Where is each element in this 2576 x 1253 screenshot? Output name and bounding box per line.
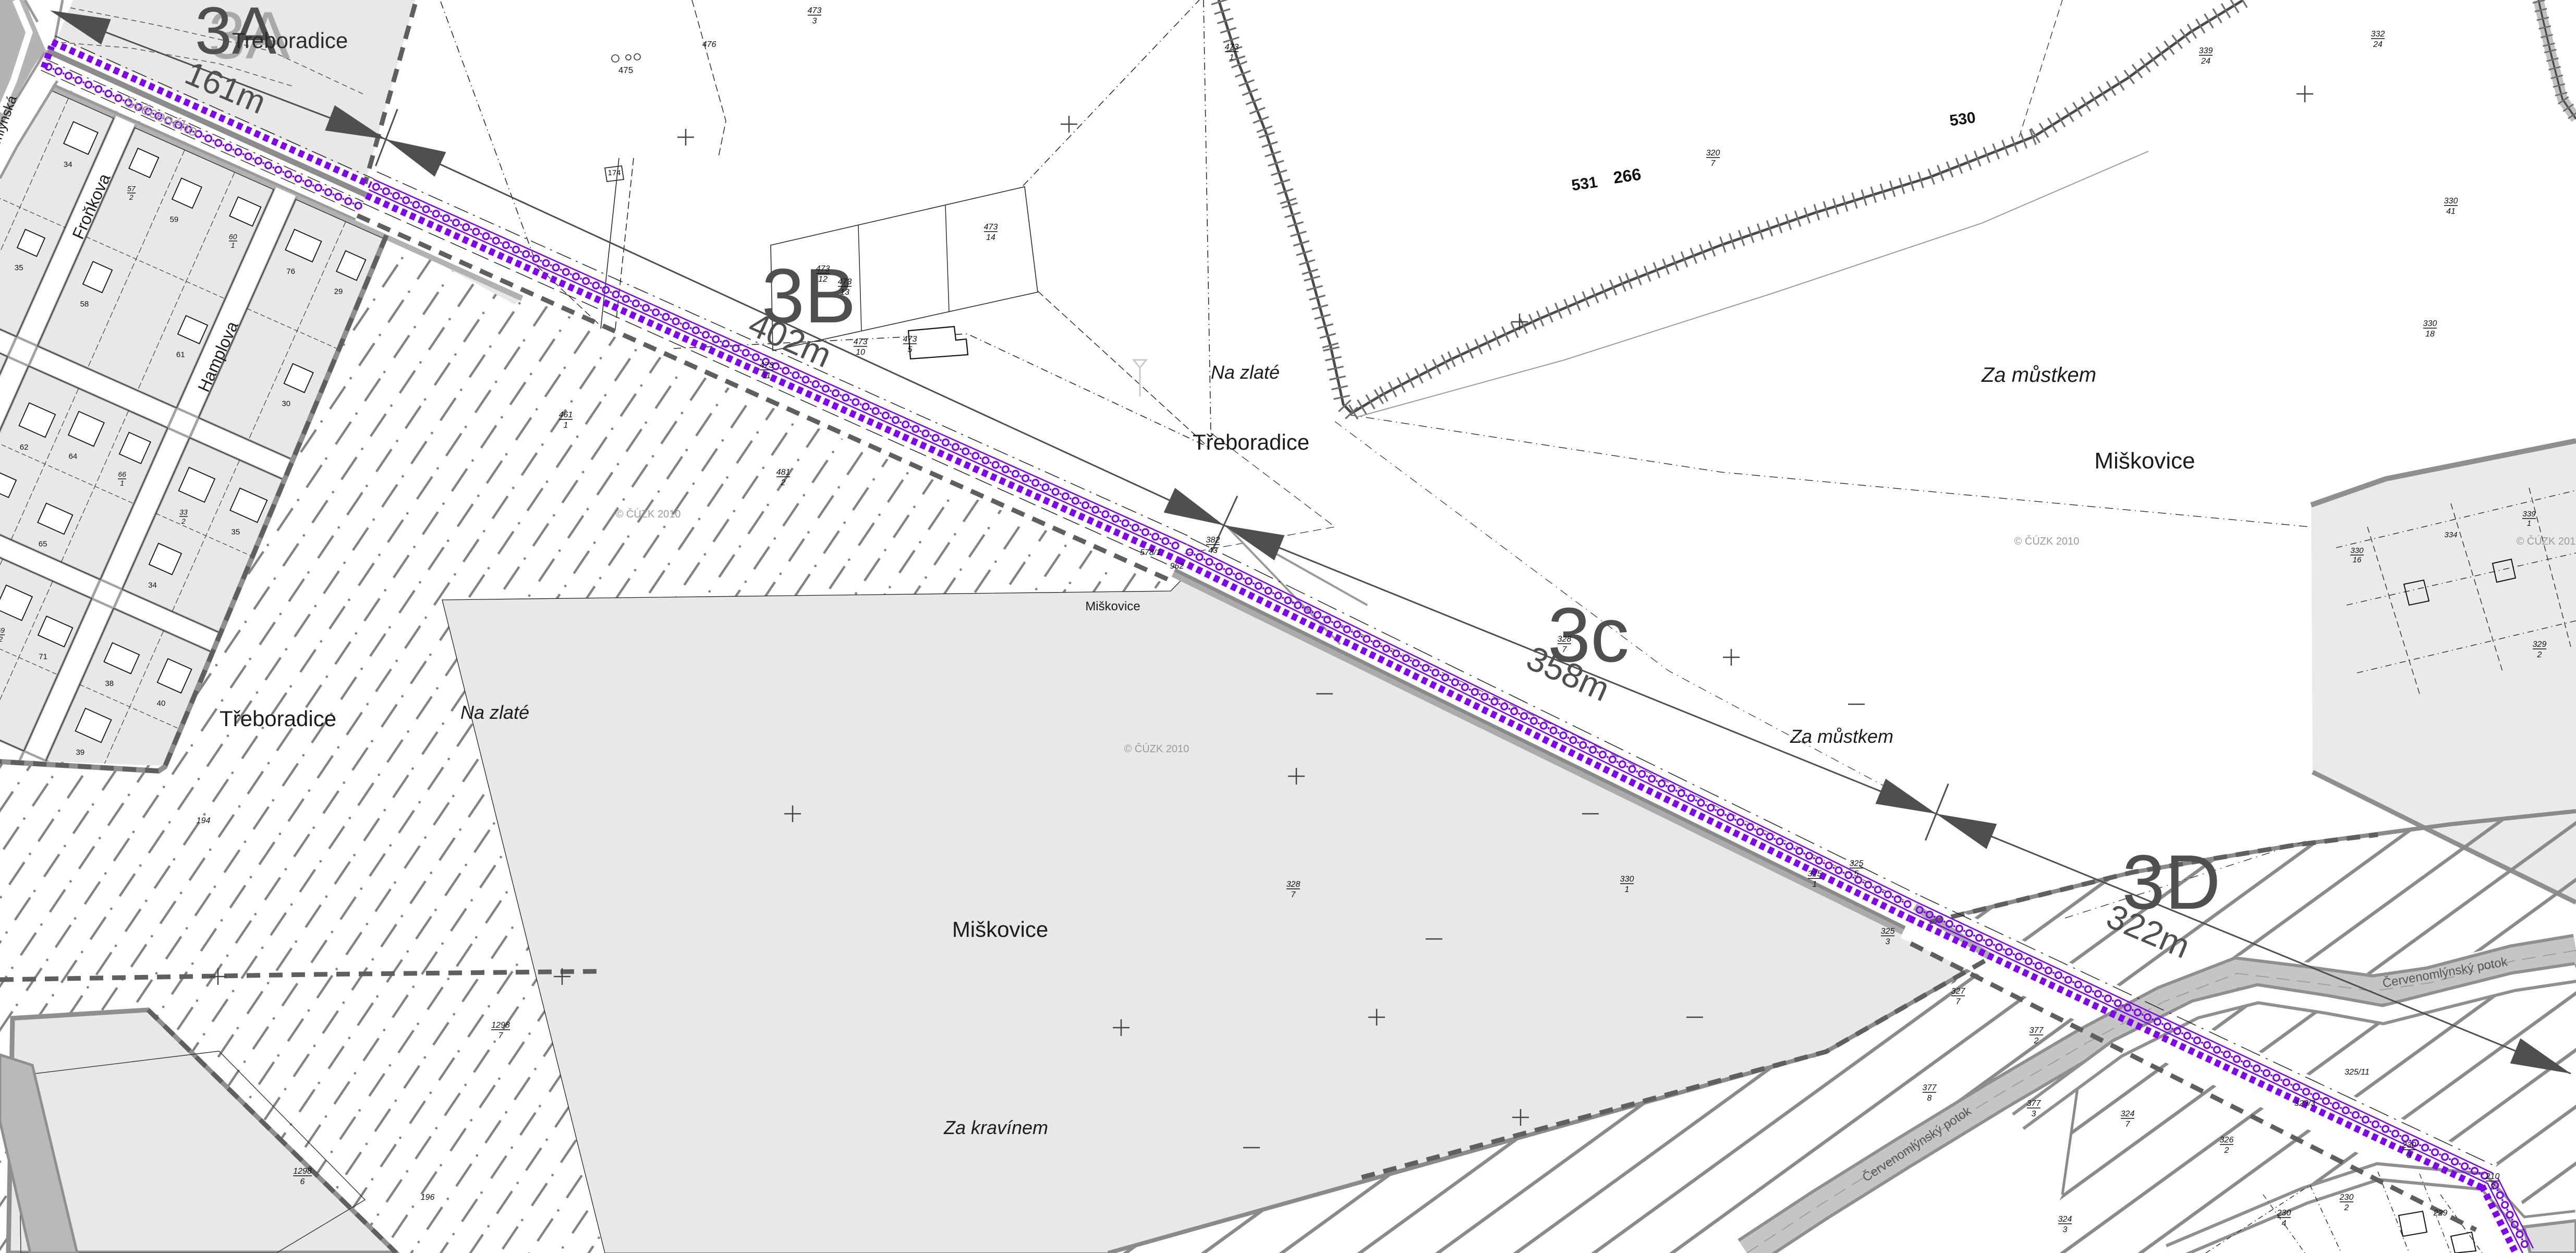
svg-text:330: 330 <box>1620 875 1634 884</box>
svg-text:481: 481 <box>776 468 791 477</box>
svg-text:66: 66 <box>118 470 126 478</box>
svg-text:473: 473 <box>984 223 998 232</box>
svg-text:1: 1 <box>1625 885 1630 894</box>
svg-text:473: 473 <box>854 338 868 346</box>
svg-text:2: 2 <box>781 478 786 487</box>
svg-text:29: 29 <box>334 287 343 296</box>
svg-text:229: 229 <box>2433 1209 2448 1218</box>
svg-text:2: 2 <box>2344 1203 2349 1212</box>
svg-text:473: 473 <box>903 335 917 344</box>
svg-text:2: 2 <box>2224 1146 2229 1155</box>
svg-text:330: 330 <box>2350 546 2364 555</box>
svg-text:© ČÚZK 2010: © ČÚZK 2010 <box>616 508 681 520</box>
svg-text:5: 5 <box>908 345 913 354</box>
svg-text:Za můstkem: Za můstkem <box>1790 726 1893 747</box>
svg-text:330: 330 <box>2423 319 2437 328</box>
svg-text:320: 320 <box>1706 149 1720 158</box>
svg-text:30: 30 <box>282 400 290 408</box>
svg-text:325: 325 <box>1808 870 1822 878</box>
svg-text:2: 2 <box>2537 650 2542 659</box>
svg-text:476: 476 <box>702 40 716 49</box>
svg-text:3: 3 <box>2063 1225 2068 1234</box>
svg-text:1298: 1298 <box>491 1021 510 1030</box>
svg-text:38: 38 <box>105 679 114 688</box>
svg-text:3: 3 <box>2032 1110 2036 1118</box>
svg-text:16: 16 <box>2353 556 2362 564</box>
svg-text:60: 60 <box>229 232 237 240</box>
svg-text:58: 58 <box>80 300 89 309</box>
svg-text:34: 34 <box>64 160 72 169</box>
svg-text:59: 59 <box>170 215 179 224</box>
svg-text:11: 11 <box>762 371 771 380</box>
svg-text:324: 324 <box>2121 1110 2135 1118</box>
svg-text:12: 12 <box>818 275 828 284</box>
svg-text:Miškovice: Miškovice <box>1085 599 1140 613</box>
svg-text:© ČÚZK 2010: © ČÚZK 2010 <box>2517 535 2576 547</box>
svg-text:3: 3 <box>1886 937 1890 946</box>
svg-text:57: 57 <box>127 184 136 192</box>
svg-text:7: 7 <box>1711 159 1716 168</box>
svg-text:6: 6 <box>300 1177 305 1186</box>
svg-text:35: 35 <box>15 263 23 272</box>
svg-text:34: 34 <box>148 581 157 589</box>
svg-text:328: 328 <box>1286 880 1301 889</box>
svg-text:33: 33 <box>179 508 188 516</box>
svg-text:Třeboradice: Třeboradice <box>1193 430 1309 454</box>
svg-text:41: 41 <box>2446 207 2456 216</box>
svg-text:325: 325 <box>1850 859 1864 868</box>
svg-text:266: 266 <box>1612 165 1643 187</box>
svg-text:461: 461 <box>559 411 573 419</box>
svg-text:Za můstkem: Za můstkem <box>1981 364 2096 387</box>
svg-text:530: 530 <box>1949 109 1977 130</box>
svg-text:43: 43 <box>1208 546 1218 555</box>
svg-text:339: 339 <box>2522 510 2536 519</box>
svg-text:329: 329 <box>2533 640 2547 649</box>
svg-text:76: 76 <box>286 267 295 276</box>
svg-text:Třeboradice: Třeboradice <box>220 706 336 731</box>
svg-text:69: 69 <box>0 626 5 634</box>
svg-text:4: 4 <box>2282 1219 2287 1228</box>
svg-text:334: 334 <box>2444 531 2457 539</box>
svg-text:230: 230 <box>2277 1209 2291 1218</box>
svg-text:324: 324 <box>2058 1215 2072 1224</box>
svg-text:473: 473 <box>816 264 830 273</box>
svg-text:332: 332 <box>2371 30 2385 39</box>
svg-text:1: 1 <box>2527 519 2531 528</box>
svg-text:Na zlaté: Na zlaté <box>1211 362 1280 383</box>
svg-text:377: 377 <box>2030 1026 2044 1035</box>
svg-text:© ČÚZK 2010: © ČÚZK 2010 <box>1124 743 1189 755</box>
svg-text:962: 962 <box>1170 562 1184 571</box>
svg-text:Na zlaté: Na zlaté <box>460 702 529 723</box>
svg-text:24: 24 <box>2373 40 2383 49</box>
svg-text:473: 473 <box>838 278 852 286</box>
svg-text:174: 174 <box>607 168 621 177</box>
svg-text:327: 327 <box>1951 987 1966 996</box>
svg-text:24: 24 <box>2201 57 2210 66</box>
svg-text:377: 377 <box>1923 1083 1937 1092</box>
svg-text:210: 210 <box>2485 1172 2500 1181</box>
svg-text:7: 7 <box>2125 1120 2131 1129</box>
svg-text:328: 328 <box>1558 635 1572 644</box>
svg-text:18: 18 <box>2425 330 2435 339</box>
svg-text:Miškovice: Miškovice <box>2094 448 2195 474</box>
svg-text:7: 7 <box>1956 997 1961 1006</box>
svg-text:326: 326 <box>2220 1136 2234 1144</box>
svg-text:473: 473 <box>808 6 822 15</box>
svg-text:3: 3 <box>2407 1151 2412 1160</box>
svg-text:7: 7 <box>1562 645 1568 654</box>
svg-text:1: 1 <box>1230 53 1234 62</box>
svg-text:475: 475 <box>618 65 633 75</box>
svg-text:3: 3 <box>812 17 817 26</box>
svg-text:578/1: 578/1 <box>1140 548 1161 557</box>
svg-text:339: 339 <box>2199 46 2213 55</box>
svg-text:10: 10 <box>856 348 865 357</box>
svg-text:531: 531 <box>1571 174 1599 195</box>
svg-text:230: 230 <box>2402 1141 2416 1150</box>
svg-text:40: 40 <box>157 699 166 708</box>
svg-text:1: 1 <box>120 479 124 487</box>
svg-text:196: 196 <box>421 1193 435 1202</box>
svg-text:39: 39 <box>76 748 84 757</box>
svg-text:1: 1 <box>564 421 568 430</box>
svg-text:1: 1 <box>1813 880 1817 889</box>
svg-text:Miškovice: Miškovice <box>952 917 1048 942</box>
svg-text:382: 382 <box>1206 536 1220 545</box>
svg-text:71: 71 <box>39 652 47 661</box>
svg-text:323/3: 323/3 <box>2294 1099 2315 1108</box>
svg-text:62: 62 <box>20 443 29 452</box>
svg-text:325: 325 <box>1881 927 1895 936</box>
svg-text:194: 194 <box>197 816 211 825</box>
svg-text:13: 13 <box>840 288 849 297</box>
svg-text:Za kravínem: Za kravínem <box>943 1117 1048 1138</box>
svg-text:61: 61 <box>176 350 185 359</box>
svg-text:5: 5 <box>1854 870 1859 878</box>
svg-text:2: 2 <box>129 193 133 201</box>
svg-text:325/11: 325/11 <box>2344 1068 2370 1077</box>
svg-text:2: 2 <box>2034 1037 2039 1045</box>
svg-text:2: 2 <box>0 635 3 643</box>
svg-text:230: 230 <box>2339 1193 2354 1202</box>
svg-text:Treboradice: Treboradice <box>232 28 348 53</box>
svg-text:65: 65 <box>39 540 47 549</box>
svg-text:© ČÚZK 2010: © ČÚZK 2010 <box>2014 535 2080 547</box>
svg-text:330: 330 <box>2444 197 2458 206</box>
svg-text:473: 473 <box>760 361 774 370</box>
svg-text:64: 64 <box>69 452 78 461</box>
svg-text:7: 7 <box>1291 890 1296 899</box>
svg-text:7: 7 <box>499 1031 504 1040</box>
svg-text:1: 1 <box>231 241 235 249</box>
svg-text:35: 35 <box>232 528 240 537</box>
svg-text:2: 2 <box>2490 1183 2495 1191</box>
svg-text:1298: 1298 <box>293 1167 312 1176</box>
svg-text:14: 14 <box>986 233 995 242</box>
svg-text:2: 2 <box>181 517 186 525</box>
svg-text:8: 8 <box>1927 1094 1932 1103</box>
svg-text:473: 473 <box>1225 43 1239 52</box>
svg-text:377: 377 <box>2027 1099 2042 1108</box>
